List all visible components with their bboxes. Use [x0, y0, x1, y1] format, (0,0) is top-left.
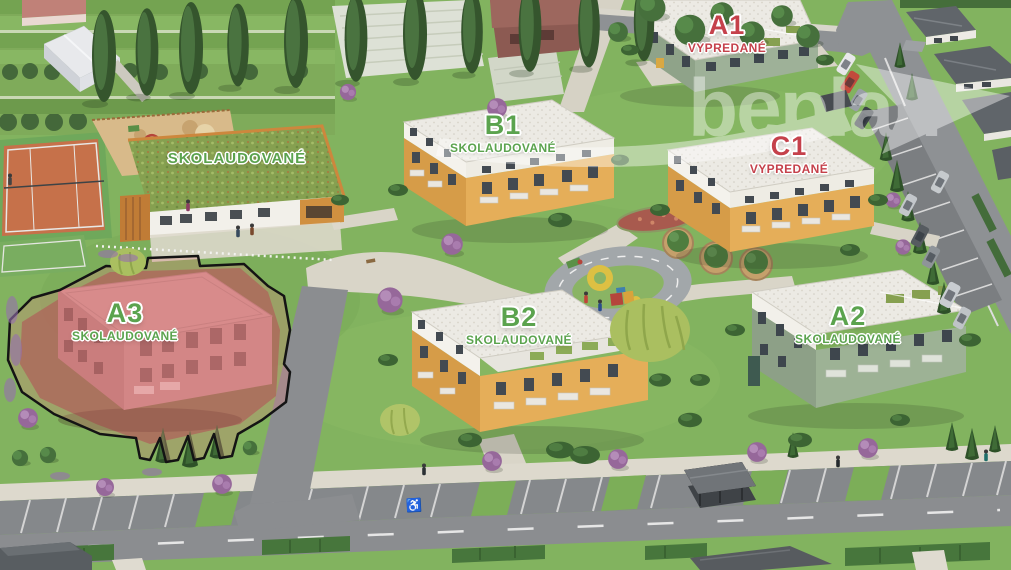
building-label-a2[interactable]: A2 SKOLAUDOVANÉ	[795, 303, 901, 345]
building-label-b2[interactable]: B2 SKOLAUDOVANÉ	[466, 304, 572, 346]
site-plan-render: ♿	[0, 0, 1011, 570]
building-code-a1: A1	[688, 12, 766, 39]
building-code-c1: C1	[750, 133, 828, 160]
building-status-a2: SKOLAUDOVANÉ	[795, 333, 901, 345]
building-status-b2: SKOLAUDOVANÉ	[466, 334, 572, 346]
building-code-a3: A3	[72, 300, 178, 327]
building-status-b1: SKOLAUDOVANÉ	[450, 142, 556, 154]
building-label-b1[interactable]: B1 SKOLAUDOVANÉ	[450, 112, 556, 154]
building-code-b1: B1	[450, 112, 556, 139]
building-status-a1: VYPREDANÉ	[688, 42, 766, 54]
kindergarten-label[interactable]: SKOLAUDOVANÉ	[168, 148, 306, 166]
building-code-a2: A2	[795, 303, 901, 330]
building-label-a3[interactable]: A3 SKOLAUDOVANÉ	[72, 300, 178, 342]
building-code-b2: B2	[466, 304, 572, 331]
building-label-a1[interactable]: A1 VYPREDANÉ	[688, 12, 766, 54]
kindergarten-status: SKOLAUDOVANÉ	[168, 151, 306, 166]
building-label-c1[interactable]: C1 VYPREDANÉ	[750, 133, 828, 175]
building-status-c1: VYPREDANÉ	[750, 163, 828, 175]
handicap-parking-icon: ♿	[406, 498, 423, 514]
building-status-a3: SKOLAUDOVANÉ	[72, 330, 178, 342]
site-render-art: ♿	[0, 0, 1011, 570]
